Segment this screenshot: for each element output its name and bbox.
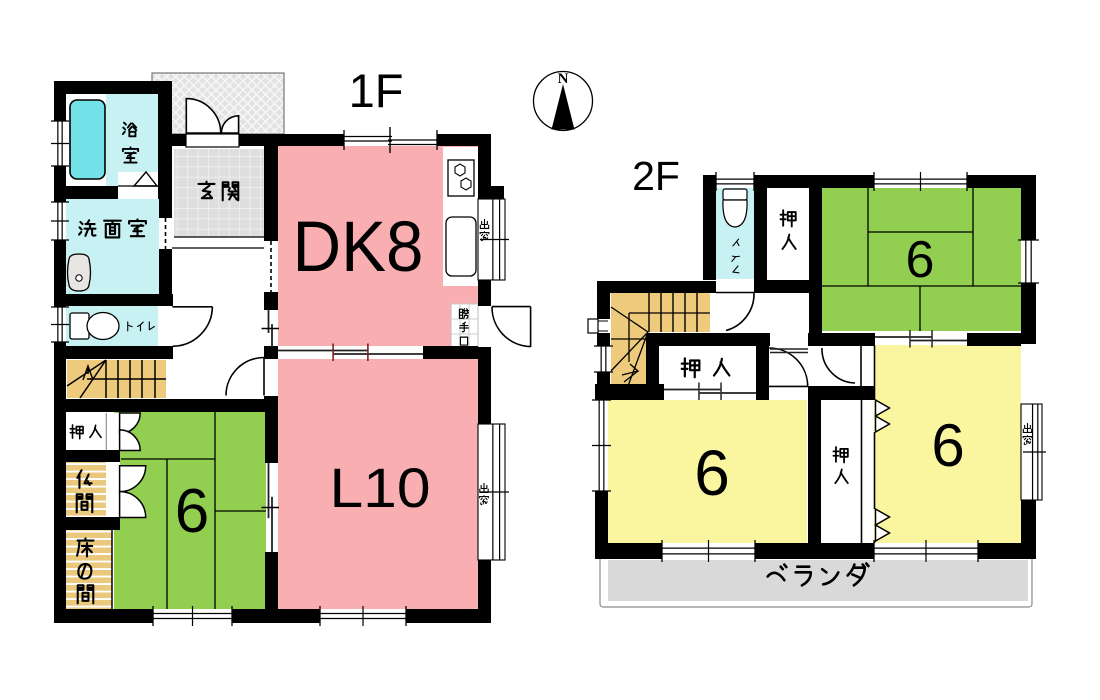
svg-text:6: 6	[694, 437, 730, 509]
svg-text:6: 6	[931, 412, 964, 479]
svg-text:N: N	[558, 71, 569, 87]
svg-text:2F: 2F	[632, 153, 680, 199]
svg-text:1F: 1F	[349, 64, 404, 117]
svg-text:L10: L10	[330, 456, 431, 519]
svg-text:6: 6	[175, 477, 209, 546]
svg-text:DK8: DK8	[293, 208, 424, 287]
svg-text:6: 6	[906, 231, 935, 289]
